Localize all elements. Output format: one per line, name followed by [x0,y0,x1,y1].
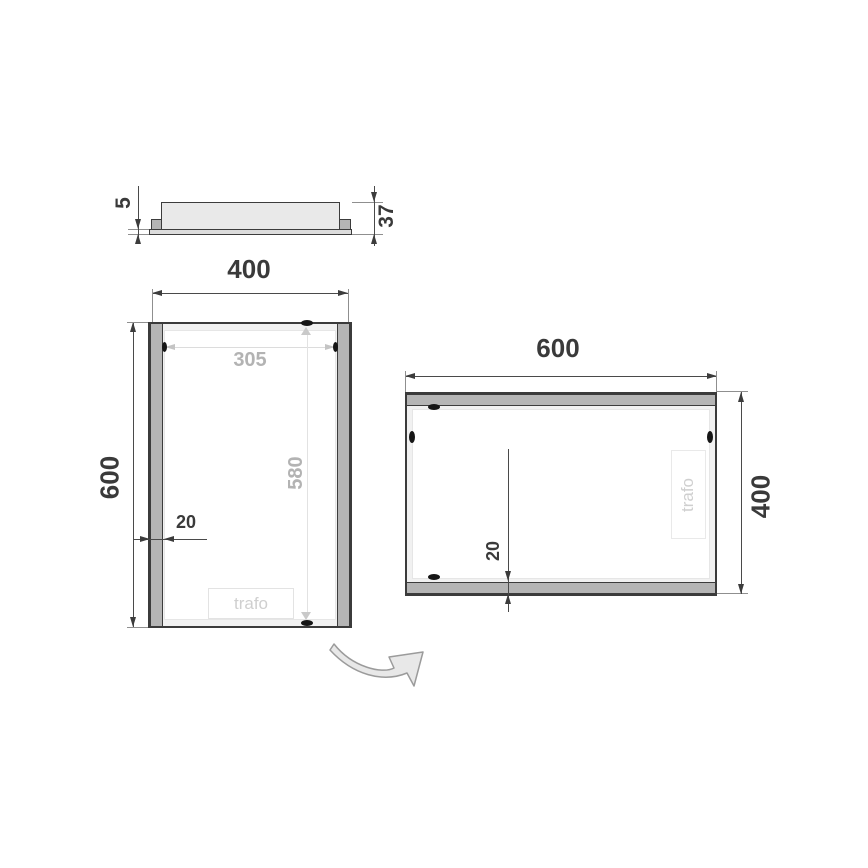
hanger-dot [301,620,313,626]
dim-arrow-down-icon [130,617,136,627]
extension-line [716,371,717,392]
dim-line [741,392,742,594]
depth-label: 37 [375,194,399,238]
trafo-box: trafo [208,588,294,619]
frame-width-label: 20 [482,535,504,567]
dim-arrow-up-icon [738,392,744,402]
hanger-dot [301,320,313,326]
extension-line [405,371,406,392]
mount-point [428,574,440,580]
mount-point [162,342,167,352]
portrait-height-label: 600 [97,442,124,514]
extension-line [348,289,349,322]
dim-arrow-down-icon [135,219,141,229]
mount-point [707,431,713,443]
landscape-height-label: 400 [748,461,775,533]
extension-line [152,289,153,322]
trafo-box: trafo [671,450,706,539]
led-strip-bottom [407,582,715,594]
extension-line [127,322,148,323]
dim-arrow-up-icon [135,234,141,244]
dim-line [133,322,134,628]
glass-panel [412,409,710,579]
trafo-label: trafo [679,477,699,511]
dim-arrow-right-icon [338,290,348,296]
dim-line [508,449,509,612]
landscape-width-label: 600 [508,334,608,362]
mirror-body-portrait: 305 580 trafo [148,322,352,628]
inner-width-label: 305 [212,349,288,371]
led-strip-left [150,324,163,626]
extension-line [127,627,148,628]
dim-arrow-left-icon [152,290,162,296]
mirror-body-landscape: trafo [405,392,717,596]
frame-width-label: 20 [170,511,202,533]
dim-arrow-down-icon [738,584,744,594]
dim-line [405,376,717,377]
dim-arrow-left-icon [164,536,174,542]
dim-arrow-up-icon [505,594,511,604]
glass-panel [164,330,336,620]
led-strip-right [337,324,350,626]
inner-height-label: 580 [284,441,308,505]
led-strip-top [407,394,715,406]
dim-arrow-up-icon [130,322,136,332]
dim-arrow-left-icon [405,373,415,379]
mount-point [333,342,338,352]
hanger-triangle-icon [301,612,311,620]
technical-drawing: 5 37 400 305 [0,0,868,868]
mount-point [428,404,440,410]
rotation-arrow-icon [328,638,433,690]
dim-line [152,293,348,294]
back-body [161,202,340,230]
trafo-label: trafo [234,594,268,614]
glass-thickness-label: 5 [113,191,135,215]
hanger-triangle-icon [301,327,311,335]
portrait-width-label: 400 [199,255,299,283]
dim-arrow-right-icon [140,536,150,542]
dim-arrow-down-icon [505,571,511,581]
mount-point [409,431,415,443]
